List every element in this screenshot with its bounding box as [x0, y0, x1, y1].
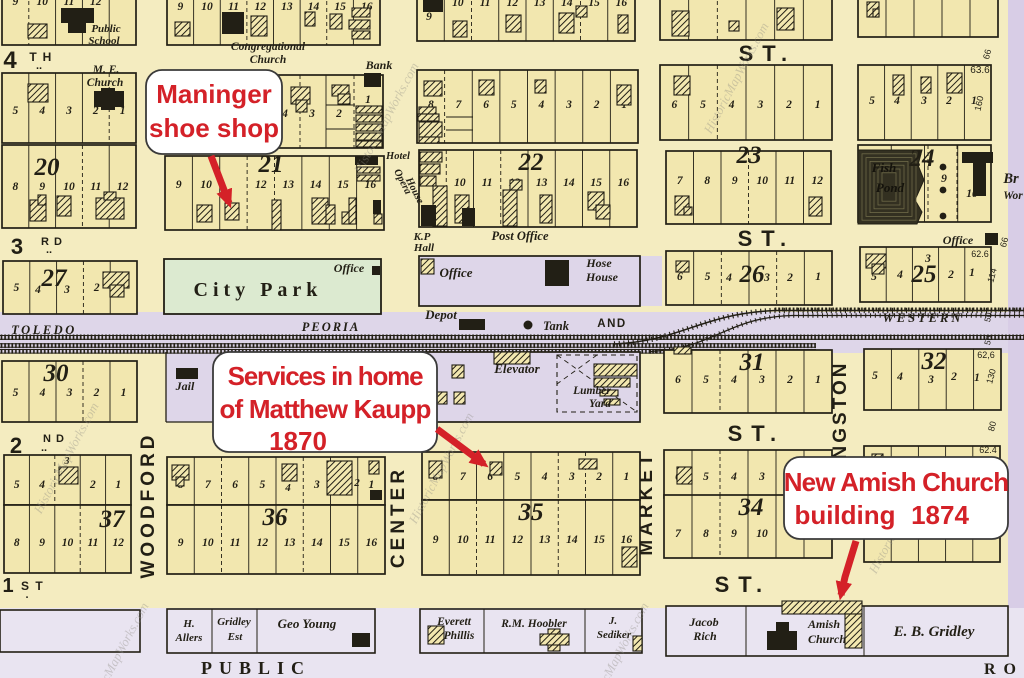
svg-text:T: T	[762, 41, 776, 66]
svg-text:2: 2	[947, 269, 954, 281]
svg-text:9: 9	[178, 537, 184, 549]
svg-text:10: 10	[757, 175, 769, 187]
svg-text:9: 9	[176, 179, 182, 191]
svg-text:14: 14	[311, 537, 323, 549]
svg-text:15: 15	[590, 177, 602, 189]
svg-text:Gridley: Gridley	[217, 616, 251, 628]
svg-text:2: 2	[595, 471, 602, 483]
svg-text:13: 13	[534, 0, 546, 9]
svg-text:3: 3	[308, 108, 315, 120]
svg-text:6: 6	[232, 479, 238, 491]
svg-text:14: 14	[563, 177, 575, 189]
svg-text:H: H	[43, 50, 52, 64]
svg-text:NGSTON: NGSTON	[830, 361, 851, 460]
svg-text:5: 5	[700, 99, 706, 111]
svg-text:22: 22	[518, 149, 544, 176]
svg-text:36: 36	[262, 504, 289, 531]
svg-text:Elevator: Elevator	[493, 361, 540, 376]
svg-text:2: 2	[785, 99, 792, 111]
svg-text:WOODFORD: WOODFORD	[138, 431, 159, 578]
svg-text:25: 25	[911, 261, 937, 288]
svg-text:2: 2	[89, 479, 96, 491]
svg-text:T: T	[738, 572, 752, 597]
svg-text:8: 8	[704, 175, 710, 187]
svg-text:11: 11	[87, 537, 98, 549]
svg-text:Church: Church	[87, 77, 123, 89]
svg-text:Hose: Hose	[585, 256, 612, 270]
svg-text:15: 15	[334, 1, 346, 13]
svg-text:5: 5	[703, 374, 709, 386]
svg-text:3: 3	[920, 95, 927, 107]
svg-text:9: 9	[13, 0, 19, 8]
svg-text:10: 10	[452, 0, 464, 9]
svg-text:21: 21	[258, 151, 284, 178]
svg-text:New Amish Church: New Amish Church	[784, 467, 1009, 497]
svg-text:H.: H.	[182, 618, 194, 630]
svg-text:3: 3	[568, 471, 575, 483]
svg-text:1: 1	[115, 479, 121, 491]
svg-text:8: 8	[703, 528, 709, 540]
svg-text:6: 6	[677, 271, 683, 283]
svg-text:Allers: Allers	[175, 632, 203, 644]
svg-text:.: .	[756, 572, 762, 597]
svg-text:.: .	[780, 226, 786, 251]
svg-text:5: 5	[14, 479, 20, 491]
svg-text:15: 15	[593, 534, 605, 546]
svg-text:32: 32	[921, 348, 947, 375]
svg-text:14: 14	[566, 534, 578, 546]
svg-text:10: 10	[756, 528, 768, 540]
svg-text:1874: 1874	[911, 500, 969, 530]
svg-text:35: 35	[518, 499, 544, 526]
svg-text:9: 9	[39, 181, 45, 193]
svg-text:9: 9	[39, 537, 45, 549]
svg-text:.: .	[781, 41, 787, 66]
svg-text:.: .	[25, 589, 28, 601]
svg-text:S: S	[728, 421, 743, 446]
svg-text:11: 11	[784, 175, 795, 187]
svg-text:15: 15	[337, 179, 349, 191]
svg-text:14: 14	[310, 179, 322, 191]
svg-text:..: ..	[46, 244, 52, 256]
svg-text:T: T	[35, 579, 43, 593]
svg-text:building: building	[794, 500, 895, 530]
svg-text:12: 12	[812, 175, 824, 187]
svg-text:1: 1	[365, 94, 371, 106]
svg-text:10: 10	[36, 0, 48, 8]
svg-text:26: 26	[739, 261, 766, 288]
svg-text:Office: Office	[334, 261, 365, 275]
svg-text:2: 2	[593, 99, 600, 111]
svg-text:3: 3	[565, 99, 572, 111]
svg-text:1: 1	[815, 271, 821, 283]
svg-text:4: 4	[34, 284, 41, 296]
svg-text:11: 11	[480, 0, 491, 9]
svg-text:Church: Church	[808, 632, 846, 646]
svg-text:5: 5	[511, 99, 517, 111]
svg-text:4: 4	[893, 95, 900, 107]
svg-text:5: 5	[705, 271, 711, 283]
svg-text:Jail: Jail	[175, 379, 195, 393]
svg-text:1870: 1870	[269, 426, 327, 456]
svg-text:4: 4	[537, 99, 544, 111]
svg-text:House: House	[585, 270, 619, 284]
svg-text:..: ..	[36, 60, 42, 72]
svg-text:PEORIA: PEORIA	[302, 320, 361, 334]
svg-text:16: 16	[366, 537, 378, 549]
svg-text:6: 6	[675, 374, 681, 386]
svg-text:Post Office: Post Office	[491, 229, 548, 243]
svg-text:13: 13	[536, 177, 548, 189]
svg-text:5: 5	[13, 105, 19, 117]
svg-text:2: 2	[786, 272, 793, 284]
svg-text:20: 20	[34, 154, 61, 181]
svg-text:AND: AND	[597, 318, 626, 330]
svg-text:1: 1	[969, 267, 975, 279]
svg-text:R.M. Hoobler: R.M. Hoobler	[500, 618, 567, 630]
svg-text:12: 12	[512, 534, 524, 546]
svg-text:16: 16	[621, 534, 633, 546]
svg-text:5: 5	[703, 471, 709, 483]
svg-text:15: 15	[338, 537, 350, 549]
svg-text:10: 10	[63, 181, 75, 193]
svg-text:12: 12	[257, 537, 269, 549]
svg-text:4: 4	[284, 482, 291, 494]
svg-text:Br: Br	[1002, 171, 1019, 187]
svg-text:16: 16	[616, 0, 628, 9]
svg-text:10: 10	[200, 179, 212, 191]
svg-text:14: 14	[561, 0, 573, 9]
svg-text:1: 1	[121, 387, 127, 399]
svg-text:D: D	[54, 236, 62, 248]
svg-text:4: 4	[541, 471, 548, 483]
svg-text:4: 4	[730, 471, 737, 483]
svg-text:2: 2	[93, 282, 100, 294]
svg-text:8: 8	[13, 181, 19, 193]
svg-text:Phillis: Phillis	[444, 630, 475, 642]
svg-text:E. B. Gridley: E. B. Gridley	[893, 624, 975, 640]
svg-text:Church: Church	[250, 54, 286, 66]
svg-text:4: 4	[3, 47, 17, 74]
svg-text:9: 9	[426, 11, 432, 23]
svg-text:10: 10	[454, 177, 466, 189]
svg-text:34: 34	[738, 494, 764, 521]
svg-text:8: 8	[14, 537, 20, 549]
svg-text:2: 2	[335, 108, 342, 120]
svg-text:10: 10	[202, 537, 214, 549]
svg-text:2: 2	[10, 433, 22, 458]
svg-text:City Park: City Park	[194, 279, 323, 301]
svg-text:15: 15	[588, 0, 600, 9]
svg-text:10: 10	[201, 1, 213, 13]
svg-text:5: 5	[13, 387, 19, 399]
svg-text:9: 9	[433, 534, 439, 546]
svg-text:12: 12	[255, 179, 267, 191]
svg-text:Amish: Amish	[807, 617, 840, 631]
svg-text:Pond: Pond	[876, 180, 905, 195]
svg-text:1: 1	[815, 99, 821, 111]
svg-text:1: 1	[369, 479, 375, 491]
svg-text:Rich: Rich	[692, 629, 717, 643]
svg-text:M. E.: M. E.	[92, 64, 120, 76]
svg-text:Est: Est	[227, 631, 244, 643]
svg-text:10: 10	[457, 534, 469, 546]
svg-text:13: 13	[284, 537, 296, 549]
svg-text:Public: Public	[91, 23, 120, 35]
svg-text:11: 11	[482, 177, 493, 189]
svg-text:4: 4	[896, 371, 903, 383]
svg-text:1: 1	[624, 471, 630, 483]
svg-text:13: 13	[281, 1, 293, 13]
svg-text:14: 14	[308, 1, 320, 13]
svg-text:23: 23	[736, 142, 762, 169]
svg-text:3: 3	[758, 471, 765, 483]
svg-text:13: 13	[282, 179, 294, 191]
svg-text:62,6: 62,6	[977, 350, 995, 360]
svg-text:Wor: Wor	[1003, 190, 1023, 202]
svg-text:12: 12	[113, 537, 125, 549]
svg-text:31: 31	[739, 349, 765, 376]
svg-text:Services in home: Services in home	[228, 361, 423, 391]
svg-text:13: 13	[539, 534, 551, 546]
svg-text:24: 24	[909, 145, 935, 172]
svg-text:.: .	[770, 421, 776, 446]
svg-text:5: 5	[515, 471, 521, 483]
svg-text:WESTERN: WESTERN	[883, 311, 964, 325]
svg-text:T: T	[761, 226, 775, 251]
svg-text:5: 5	[869, 95, 875, 107]
svg-text:5: 5	[872, 370, 878, 382]
svg-text:6: 6	[483, 99, 489, 111]
svg-text:1: 1	[2, 575, 13, 597]
svg-text:Fish: Fish	[871, 160, 897, 175]
svg-text:9: 9	[731, 528, 737, 540]
svg-text:..: ..	[41, 442, 47, 454]
svg-text:3: 3	[924, 253, 931, 265]
svg-text:11: 11	[64, 0, 75, 8]
svg-text:5: 5	[14, 282, 20, 294]
svg-text:3: 3	[763, 272, 770, 284]
svg-text:2: 2	[950, 371, 957, 383]
svg-text:2: 2	[353, 477, 360, 489]
svg-text:5: 5	[260, 479, 266, 491]
svg-text:10: 10	[62, 537, 74, 549]
svg-text:1: 1	[815, 374, 821, 386]
svg-text:School: School	[88, 35, 120, 47]
svg-text:S: S	[738, 226, 753, 251]
svg-text:9: 9	[732, 175, 738, 187]
svg-text:2: 2	[93, 387, 100, 399]
svg-text:4: 4	[730, 374, 737, 386]
svg-text:16: 16	[618, 177, 630, 189]
svg-text:3: 3	[313, 479, 320, 491]
svg-text:62.6: 62.6	[971, 249, 989, 259]
svg-text:11: 11	[230, 537, 241, 549]
svg-text:Lumber: Lumber	[572, 385, 611, 397]
svg-text:30: 30	[43, 360, 70, 387]
svg-text:Depot: Depot	[424, 307, 457, 322]
svg-text:of Matthew Kaupp: of Matthew Kaupp	[219, 394, 430, 424]
svg-text:D: D	[56, 433, 64, 445]
svg-text:3: 3	[63, 284, 70, 296]
svg-text:Tank: Tank	[543, 319, 570, 333]
svg-text:2: 2	[945, 95, 952, 107]
svg-text:4: 4	[39, 387, 46, 399]
svg-text:6: 6	[671, 99, 677, 111]
svg-text:11: 11	[90, 181, 101, 193]
svg-text:Hall: Hall	[413, 242, 435, 254]
svg-text:11: 11	[485, 534, 496, 546]
svg-text:Congregational: Congregational	[231, 41, 306, 53]
svg-text:shoe shop: shoe shop	[149, 113, 279, 143]
svg-text:1: 1	[974, 372, 980, 384]
svg-text:3: 3	[65, 105, 72, 117]
svg-text:12: 12	[117, 181, 129, 193]
svg-text:Bank: Bank	[365, 58, 393, 72]
svg-text:3: 3	[756, 99, 763, 111]
svg-text:37: 37	[99, 506, 127, 533]
svg-text:3: 3	[927, 374, 934, 386]
svg-text:PUBLIC: PUBLIC	[201, 658, 311, 678]
svg-text:3: 3	[11, 234, 23, 259]
svg-text:Yard: Yard	[589, 398, 611, 410]
svg-text:Office: Office	[943, 233, 974, 247]
svg-text:Hotel: Hotel	[385, 151, 410, 162]
svg-text:J.: J.	[608, 615, 617, 627]
svg-text:12: 12	[507, 0, 519, 9]
svg-text:S: S	[715, 572, 730, 597]
svg-text:R O: R O	[984, 661, 1018, 678]
svg-text:2: 2	[786, 374, 793, 386]
svg-text:9: 9	[177, 1, 183, 13]
svg-text:T: T	[751, 421, 765, 446]
svg-text:12: 12	[90, 0, 102, 8]
svg-text:11: 11	[228, 1, 239, 13]
svg-text:4: 4	[725, 272, 732, 284]
svg-text:63.6: 63.6	[970, 65, 990, 76]
svg-text:Office: Office	[440, 265, 473, 280]
svg-text:12: 12	[254, 1, 266, 13]
svg-text:62.4: 62.4	[979, 445, 997, 455]
svg-text:4: 4	[896, 269, 903, 281]
svg-text:Geo Young: Geo Young	[278, 616, 337, 631]
svg-text:4: 4	[38, 105, 45, 117]
svg-text:Jacob: Jacob	[688, 615, 718, 629]
svg-text:Maninger: Maninger	[156, 79, 272, 109]
svg-text:3: 3	[66, 387, 73, 399]
svg-text:9: 9	[941, 173, 947, 185]
